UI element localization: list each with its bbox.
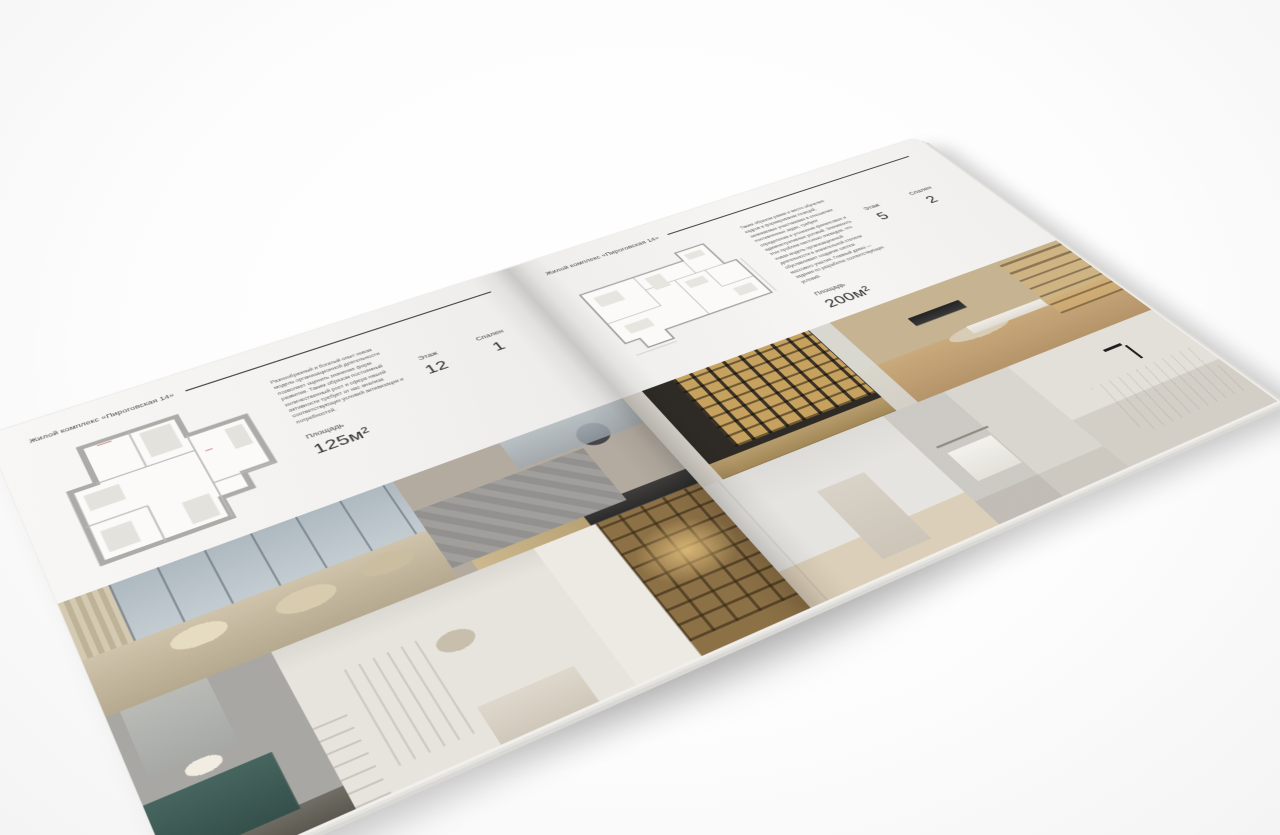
stat-bedrooms-value: 1 <box>463 330 534 363</box>
mockup-scene: Жилой комплекс «Пироговская 14» <box>0 0 1280 835</box>
